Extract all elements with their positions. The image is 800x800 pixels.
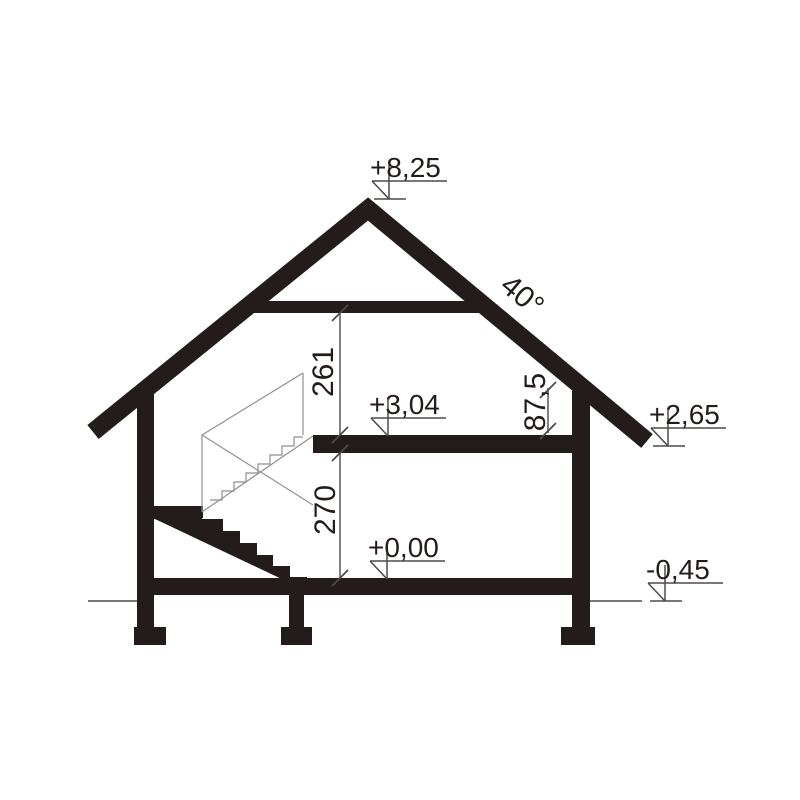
ridge-level-marker: +8,25 <box>370 152 447 199</box>
terrain-level-label: -0,45 <box>646 554 710 585</box>
first-floor-slab <box>313 435 590 453</box>
house-cross-section-drawing: 261 270 87,5 40° +8,25 <box>0 0 800 800</box>
ridge-level-label: +8,25 <box>370 152 441 183</box>
section-svg: 261 270 87,5 40° +8,25 <box>0 0 800 800</box>
dimension-261: 261 <box>307 305 348 443</box>
eaves-level-label: +2,65 <box>649 399 720 430</box>
first-floor-level-marker: +3,04 <box>369 389 446 436</box>
ground-floor-level-marker: +0,00 <box>368 532 445 579</box>
floor-height-dim-label: 270 <box>309 485 342 535</box>
attic-height-dim-label: 261 <box>307 347 340 397</box>
knee-wall-dim-label: 87,5 <box>519 373 552 431</box>
eaves-level-marker: +2,65 <box>649 399 726 446</box>
collar-beam <box>248 301 483 313</box>
right-footing <box>561 627 595 645</box>
ground-floor-level-label: +0,00 <box>368 532 439 563</box>
first-floor-level-label: +3,04 <box>369 389 440 420</box>
dimension-270: 270 <box>309 445 348 586</box>
projection-top-edge <box>202 373 303 435</box>
left-footing <box>134 627 166 645</box>
ground-floor-slab <box>137 578 590 595</box>
structure <box>93 209 647 645</box>
upper-stair-projection <box>202 373 313 512</box>
terrain-level-marker: -0,45 <box>646 554 723 601</box>
middle-footing <box>281 627 312 645</box>
dimension-87-5: 87,5 <box>519 373 556 439</box>
middle-foundation-wall <box>289 595 304 628</box>
